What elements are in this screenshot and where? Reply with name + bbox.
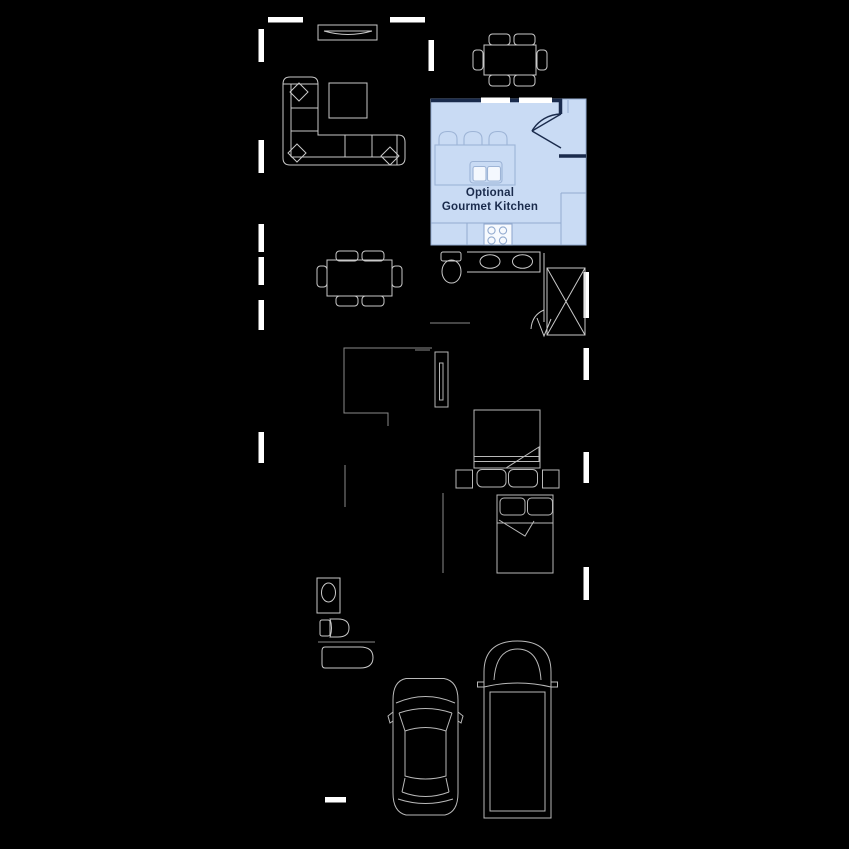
window-marker bbox=[259, 432, 265, 463]
option-label: Optional Gourmet Kitchen bbox=[431, 187, 549, 214]
floor-plan bbox=[0, 0, 849, 849]
window-marker bbox=[390, 17, 425, 23]
blanket-fold-icon bbox=[499, 520, 534, 536]
window-marker bbox=[584, 452, 590, 483]
basin-icon bbox=[513, 255, 533, 269]
chair-icon bbox=[392, 266, 402, 287]
chair-icon bbox=[489, 75, 510, 86]
option-label-line2: Gourmet Kitchen bbox=[431, 201, 549, 215]
toilet-icon bbox=[320, 619, 349, 637]
mirror-icon bbox=[458, 712, 463, 723]
pillow-icon bbox=[509, 470, 538, 488]
window-marker bbox=[481, 98, 510, 104]
window-marker bbox=[519, 98, 552, 104]
optional-gourmet-kitchen-region[interactable] bbox=[431, 98, 586, 246]
double-vanity-icon bbox=[467, 252, 540, 272]
nightstand-icon bbox=[456, 470, 473, 488]
dining-table-icon bbox=[473, 34, 547, 86]
window-marker bbox=[584, 272, 590, 318]
chair-icon bbox=[514, 75, 535, 86]
tv-console-icon bbox=[318, 25, 377, 40]
window-marker bbox=[584, 348, 590, 380]
coffee-table-icon bbox=[329, 83, 367, 118]
pocket-door-icon bbox=[435, 352, 448, 407]
basin-icon bbox=[322, 583, 336, 602]
nightstand-icon bbox=[543, 470, 560, 488]
chair-icon bbox=[489, 34, 510, 45]
window-marker bbox=[325, 797, 346, 803]
throw-pillow-icon bbox=[290, 83, 308, 101]
window-marker bbox=[259, 140, 265, 173]
car-sedan-icon bbox=[388, 679, 463, 816]
window-marker bbox=[268, 17, 303, 23]
stove-icon bbox=[484, 224, 512, 245]
bed-queen-icon bbox=[456, 410, 559, 488]
window-marker bbox=[259, 224, 265, 252]
bed-full-icon bbox=[497, 495, 553, 573]
blanket-fold-icon bbox=[506, 447, 539, 468]
mirror-icon bbox=[478, 682, 485, 687]
suv-truck-icon bbox=[478, 641, 558, 818]
window-marker bbox=[429, 40, 435, 71]
chair-icon bbox=[336, 296, 358, 306]
bath-vanity-icon bbox=[317, 578, 340, 613]
chair-icon bbox=[317, 266, 327, 287]
window-marker bbox=[584, 567, 590, 600]
floor-plan-canvas: Optional Gourmet Kitchen bbox=[0, 0, 849, 849]
pillow-icon bbox=[477, 470, 506, 488]
bathtub-icon bbox=[322, 647, 373, 668]
basin-icon bbox=[480, 255, 500, 269]
mirror-icon bbox=[388, 712, 393, 723]
sectional-sofa-icon bbox=[283, 77, 405, 165]
pillow-icon bbox=[528, 498, 553, 515]
throw-pillow-icon bbox=[381, 147, 399, 165]
chair-icon bbox=[362, 296, 384, 306]
wall-lines bbox=[344, 323, 470, 573]
window-marker bbox=[259, 29, 265, 62]
mirror-icon bbox=[551, 682, 558, 687]
chair-icon bbox=[473, 50, 483, 70]
pillow-icon bbox=[500, 498, 525, 515]
chair-icon bbox=[514, 34, 535, 45]
chair-icon bbox=[537, 50, 547, 70]
window-marker bbox=[259, 257, 265, 285]
toilet-icon bbox=[441, 252, 461, 283]
option-label-line1: Optional bbox=[431, 187, 549, 201]
shower-icon bbox=[531, 253, 585, 336]
dining-table-2-icon bbox=[317, 251, 402, 306]
window-marker bbox=[259, 300, 265, 330]
